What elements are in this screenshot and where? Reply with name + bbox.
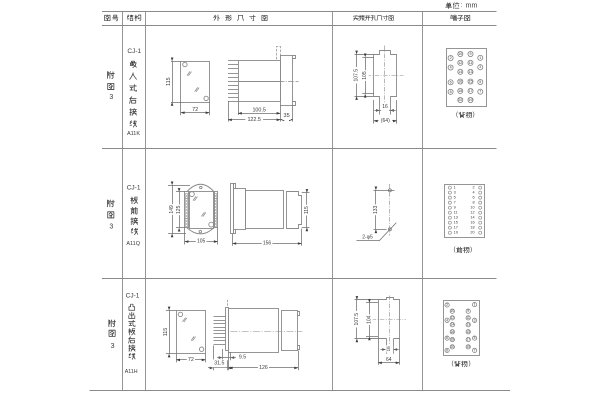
svg-text:18: 18 bbox=[450, 338, 454, 342]
svg-text:3: 3 bbox=[109, 224, 113, 231]
svg-text:12: 12 bbox=[470, 211, 474, 215]
svg-text:1: 1 bbox=[479, 56, 481, 60]
svg-text:(: ( bbox=[456, 112, 458, 118]
svg-text:A11K: A11K bbox=[127, 131, 140, 137]
svg-text:125: 125 bbox=[176, 205, 182, 214]
svg-text:18: 18 bbox=[470, 226, 474, 230]
svg-text:3: 3 bbox=[479, 65, 481, 69]
svg-text:16: 16 bbox=[458, 80, 462, 84]
svg-text:15: 15 bbox=[454, 221, 458, 225]
svg-text:156: 156 bbox=[263, 241, 272, 247]
svg-text:15: 15 bbox=[466, 330, 470, 334]
svg-text:5: 5 bbox=[454, 196, 456, 200]
svg-text:14: 14 bbox=[450, 323, 454, 327]
svg-text:149: 149 bbox=[169, 205, 175, 214]
svg-text:20: 20 bbox=[470, 231, 474, 235]
svg-text:18: 18 bbox=[458, 89, 462, 93]
svg-text:2: 2 bbox=[450, 56, 452, 60]
svg-text:7: 7 bbox=[454, 201, 456, 205]
svg-text:100.5: 100.5 bbox=[252, 108, 266, 114]
svg-text:5: 5 bbox=[474, 336, 476, 340]
svg-text:10: 10 bbox=[458, 52, 462, 56]
svg-text:9: 9 bbox=[470, 52, 472, 56]
svg-text:2: 2 bbox=[472, 186, 474, 190]
svg-text:6: 6 bbox=[446, 336, 448, 340]
svg-text:9: 9 bbox=[467, 309, 469, 313]
svg-text:6: 6 bbox=[450, 80, 452, 84]
svg-text:20: 20 bbox=[458, 98, 462, 102]
svg-text:115: 115 bbox=[166, 77, 172, 86]
svg-text:31.5: 31.5 bbox=[214, 360, 224, 366]
svg-text:14: 14 bbox=[470, 216, 474, 220]
svg-text:13: 13 bbox=[466, 323, 470, 327]
svg-text:105: 105 bbox=[197, 239, 206, 245]
svg-text:105: 105 bbox=[362, 71, 368, 80]
svg-text:6: 6 bbox=[472, 196, 474, 200]
svg-text:16: 16 bbox=[386, 346, 392, 352]
svg-text:3: 3 bbox=[111, 343, 115, 350]
svg-text:1: 1 bbox=[474, 303, 476, 307]
svg-text:A11Q: A11Q bbox=[126, 241, 140, 247]
svg-text:2: 2 bbox=[446, 303, 448, 307]
svg-text:A11H: A11H bbox=[125, 369, 138, 375]
svg-text:1: 1 bbox=[454, 186, 456, 190]
svg-text:107.5: 107.5 bbox=[354, 69, 360, 82]
svg-text:13: 13 bbox=[454, 216, 458, 220]
svg-text:122.5: 122.5 bbox=[247, 117, 261, 123]
svg-text:7: 7 bbox=[474, 348, 476, 352]
svg-text:14: 14 bbox=[458, 70, 462, 74]
svg-text:10: 10 bbox=[470, 206, 474, 210]
svg-text:8: 8 bbox=[472, 201, 474, 205]
svg-text:(64): (64) bbox=[381, 118, 390, 124]
svg-text:8: 8 bbox=[446, 348, 448, 352]
svg-text:126: 126 bbox=[259, 365, 268, 371]
svg-text:3: 3 bbox=[454, 191, 456, 195]
svg-text:107.5: 107.5 bbox=[354, 313, 360, 326]
svg-text:): ) bbox=[473, 112, 475, 118]
svg-text:19: 19 bbox=[466, 345, 470, 349]
svg-text:11: 11 bbox=[454, 211, 458, 215]
svg-text:16: 16 bbox=[382, 104, 388, 110]
svg-text:104: 104 bbox=[366, 315, 372, 324]
svg-text:17: 17 bbox=[469, 89, 473, 93]
svg-text:(: ( bbox=[452, 361, 454, 367]
svg-text:16: 16 bbox=[470, 221, 474, 225]
svg-text:4: 4 bbox=[450, 66, 452, 70]
svg-text:CJ-1: CJ-1 bbox=[126, 293, 140, 300]
svg-text:3: 3 bbox=[109, 94, 113, 101]
svg-text:19: 19 bbox=[469, 98, 473, 102]
svg-text:15: 15 bbox=[469, 80, 473, 84]
svg-text:10: 10 bbox=[450, 309, 454, 313]
svg-text:72: 72 bbox=[188, 357, 194, 363]
svg-text:115: 115 bbox=[304, 206, 310, 214]
svg-text:20: 20 bbox=[450, 345, 454, 349]
svg-text:115: 115 bbox=[163, 328, 169, 337]
svg-text:7: 7 bbox=[479, 90, 481, 94]
svg-text:9: 9 bbox=[454, 206, 456, 210]
svg-text:12: 12 bbox=[458, 61, 462, 65]
svg-text:72: 72 bbox=[192, 107, 198, 113]
svg-text:17: 17 bbox=[454, 226, 458, 230]
svg-text:16: 16 bbox=[450, 330, 454, 334]
svg-text:mm: mm bbox=[466, 3, 478, 10]
svg-text:11: 11 bbox=[466, 316, 470, 320]
svg-text:133: 133 bbox=[373, 205, 379, 214]
svg-text:2-φ5: 2-φ5 bbox=[362, 235, 373, 241]
svg-text:4: 4 bbox=[472, 191, 474, 195]
svg-text:64: 64 bbox=[386, 357, 392, 363]
svg-text:CJ-1: CJ-1 bbox=[127, 48, 141, 55]
svg-text:13: 13 bbox=[469, 70, 473, 74]
svg-text:3: 3 bbox=[474, 318, 476, 322]
svg-text:11: 11 bbox=[469, 61, 473, 65]
svg-text:17: 17 bbox=[466, 338, 470, 342]
svg-text:19: 19 bbox=[454, 231, 458, 235]
svg-text:12: 12 bbox=[450, 316, 454, 320]
svg-text:35: 35 bbox=[284, 113, 290, 119]
svg-text:5: 5 bbox=[479, 80, 481, 84]
svg-text:(: ( bbox=[454, 247, 456, 253]
svg-text:CJ-1: CJ-1 bbox=[127, 185, 141, 192]
svg-text:8: 8 bbox=[450, 90, 452, 94]
svg-text:): ) bbox=[470, 247, 472, 253]
svg-text:9.5: 9.5 bbox=[239, 355, 246, 361]
svg-text:4: 4 bbox=[446, 318, 448, 322]
svg-text:): ) bbox=[469, 361, 471, 367]
